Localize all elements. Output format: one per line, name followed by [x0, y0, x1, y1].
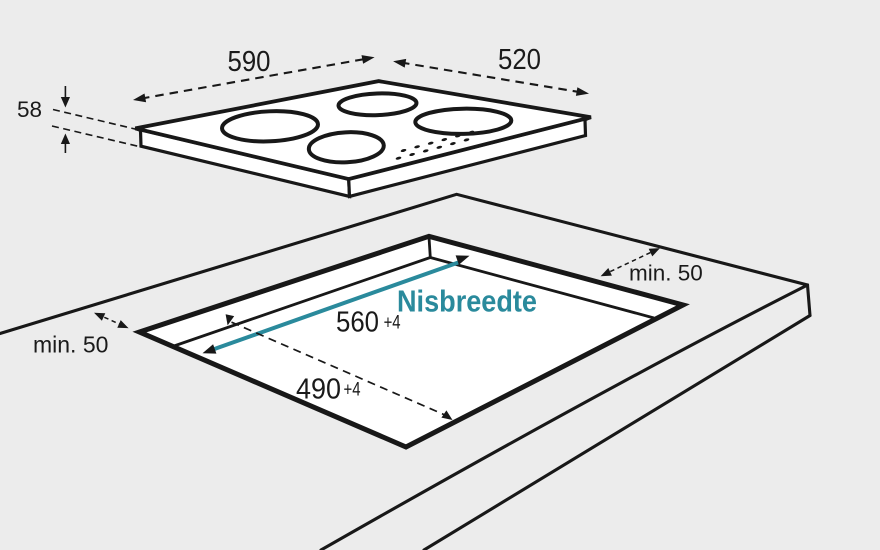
svg-text:Nisbreedte: Nisbreedte [397, 284, 537, 319]
svg-text:560: 560 [336, 307, 379, 339]
svg-text:min. 50: min. 50 [629, 261, 703, 286]
svg-text:590: 590 [228, 46, 271, 78]
svg-text:+4: +4 [344, 380, 361, 401]
svg-text:+4: +4 [384, 313, 401, 334]
svg-text:58: 58 [17, 97, 42, 122]
svg-text:520: 520 [498, 44, 541, 76]
svg-text:min. 50: min. 50 [33, 332, 108, 358]
svg-text:490: 490 [296, 374, 341, 406]
